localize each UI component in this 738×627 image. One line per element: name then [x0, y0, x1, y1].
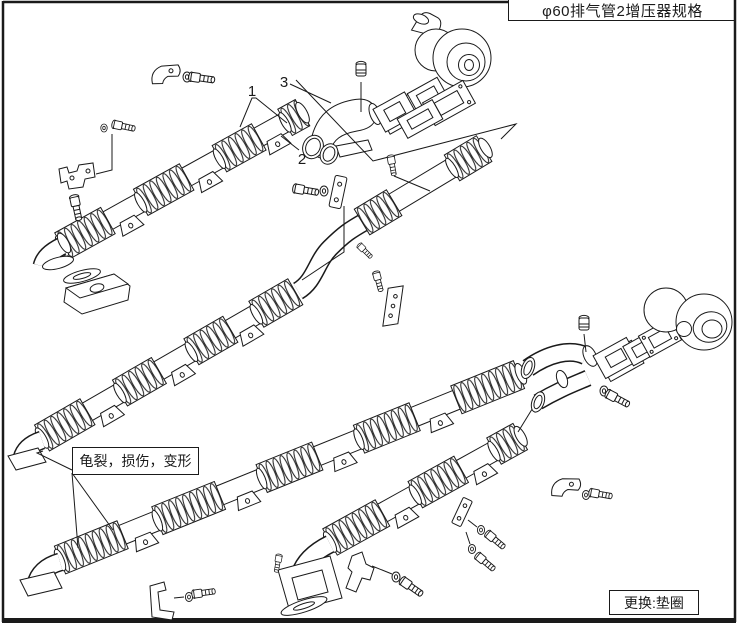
swan-neck-pipe	[298, 221, 366, 291]
assembly-line	[518, 406, 534, 432]
callout-1: 1	[248, 83, 256, 100]
elbow-bottom-left	[273, 544, 342, 619]
parts-diagram: 1 2 3	[0, 0, 738, 627]
bracket-upper-left	[59, 120, 136, 189]
clamp-bracket-top	[151, 61, 215, 88]
l-bracket-bottom-left	[150, 582, 216, 620]
page-title: φ60排气管2增压器规格	[508, 0, 736, 21]
callout-3: 3	[280, 74, 288, 91]
replace-note: 更换:垫圈	[609, 590, 699, 615]
damage-label: 龟裂，损伤，变形	[72, 447, 199, 475]
clamp-bracket-right	[550, 473, 613, 502]
plug-fitting-1	[356, 61, 366, 76]
fork-bracket-bottom	[346, 552, 425, 598]
bracket-plate-mid	[372, 270, 407, 329]
plug-fitting-2	[579, 315, 589, 330]
turbocharger-1	[411, 11, 491, 87]
bracket-bottom-mid	[452, 497, 507, 573]
callout-2: 2	[298, 151, 306, 168]
connector-pipe-upper-right	[354, 133, 497, 235]
elbow-lower-left	[20, 562, 62, 596]
manual-page: 1 2 3 φ60排气管2增压器规格 龟裂，损伤，变形 更换:垫圈	[0, 0, 738, 627]
exhaust-manifold-pipe-upper	[51, 97, 316, 266]
outlet-elbow-item3	[299, 61, 384, 167]
